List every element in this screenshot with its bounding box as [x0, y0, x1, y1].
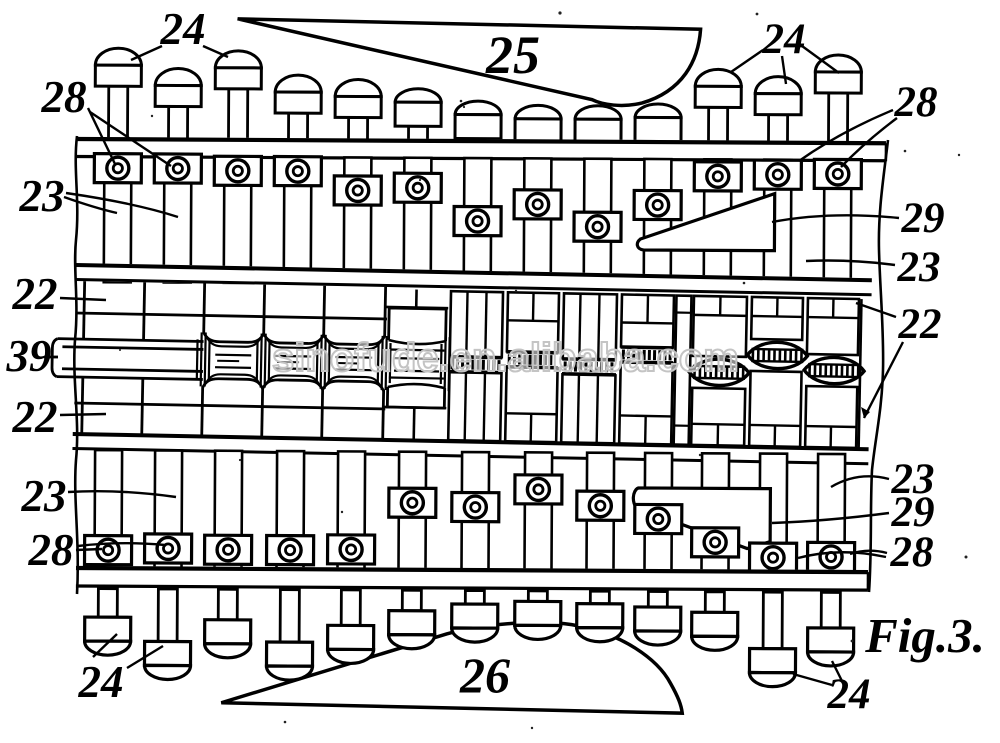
svg-text:22: 22 [898, 301, 942, 348]
svg-text:29: 29 [901, 195, 945, 242]
svg-text:Fig.3.: Fig.3. [864, 608, 985, 663]
svg-text:22: 22 [12, 269, 58, 319]
svg-text:24: 24 [827, 671, 871, 718]
svg-text:23: 23 [19, 171, 65, 221]
svg-text:sinofude.en.alibaba.com: sinofude.en.alibaba.com [272, 336, 739, 380]
svg-text:23: 23 [897, 244, 941, 291]
svg-text:28: 28 [890, 529, 934, 576]
svg-text:24: 24 [160, 4, 206, 54]
svg-text:24: 24 [78, 657, 124, 707]
svg-text:28: 28 [894, 79, 938, 126]
svg-text:26: 26 [459, 647, 510, 703]
svg-text:23: 23 [21, 471, 67, 521]
svg-text:22: 22 [12, 392, 58, 442]
svg-text:25: 25 [485, 25, 540, 85]
svg-text:28: 28 [28, 525, 74, 575]
svg-text:24: 24 [762, 16, 806, 63]
svg-text:28: 28 [41, 72, 87, 122]
